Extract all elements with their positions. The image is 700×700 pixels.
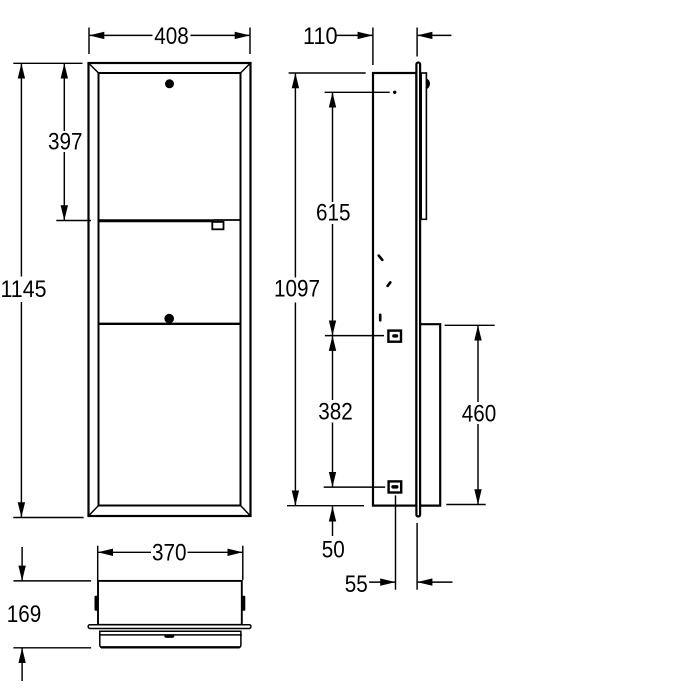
svg-text:460: 460 bbox=[462, 401, 497, 428]
svg-text:169: 169 bbox=[7, 601, 42, 628]
svg-text:110: 110 bbox=[303, 23, 338, 50]
svg-text:397: 397 bbox=[48, 128, 83, 155]
svg-text:1097: 1097 bbox=[274, 276, 320, 303]
svg-text:50: 50 bbox=[322, 536, 345, 563]
svg-text:1145: 1145 bbox=[1, 276, 47, 303]
svg-text:382: 382 bbox=[318, 398, 353, 425]
svg-text:615: 615 bbox=[316, 200, 351, 227]
svg-text:370: 370 bbox=[152, 540, 187, 567]
svg-text:408: 408 bbox=[154, 23, 189, 50]
svg-text:55: 55 bbox=[345, 571, 368, 598]
